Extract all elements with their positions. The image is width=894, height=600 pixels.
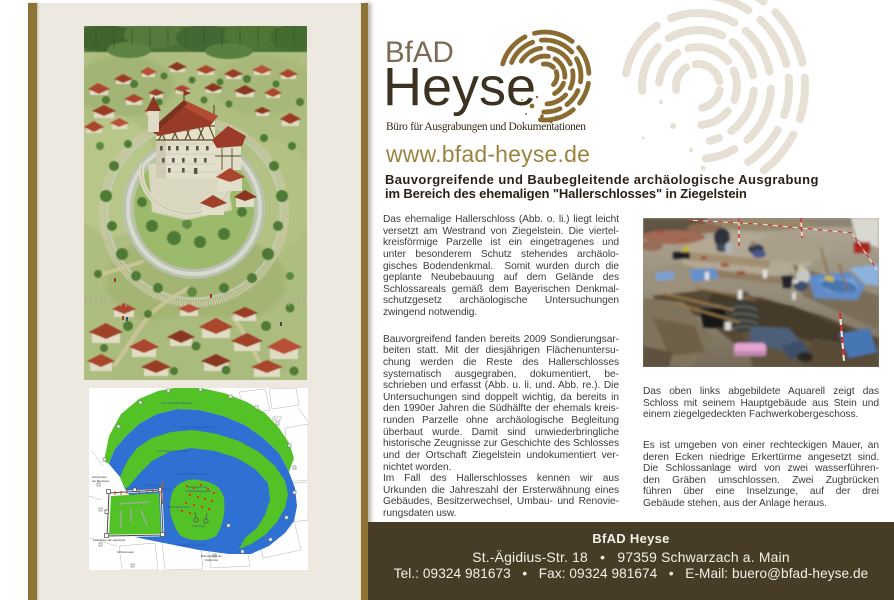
svg-text:2 Brunnen: 2 Brunnen — [192, 524, 205, 528]
svg-text:Sohlrest des Wassergrabens: Sohlrest des Wassergrabens — [175, 472, 210, 476]
svg-text:mit ein oder zwei Gängen: mit ein oder zwei Gängen — [139, 487, 171, 491]
svg-text:Wirtschaftsgebäude: Wirtschaftsgebäude — [186, 489, 211, 493]
svg-text:Lehmboden der Vorinsel: Lehmboden der Vorinsel — [177, 543, 207, 547]
svg-text:Schlossmauer: Schlossmauer — [117, 550, 134, 554]
svg-text:Lehmboden der Hauptinsel: Lehmboden der Hauptinsel — [93, 538, 126, 542]
svg-text:Sohlrest des Wassergrabens: Sohlrest des Wassergrabens — [179, 425, 214, 429]
svg-text:Lehmboden des Walringes: Lehmboden des Walringes — [157, 449, 190, 453]
svg-text:Werkstattbereiche: Werkstattbereiche — [168, 505, 191, 509]
svg-text:Zugbrücke: Zugbrücke — [205, 558, 219, 562]
svg-text:der Bauphase: der Bauphase — [92, 479, 110, 483]
svg-text:Lehmboden des Walringes: Lehmboden des Walringes — [161, 401, 194, 405]
